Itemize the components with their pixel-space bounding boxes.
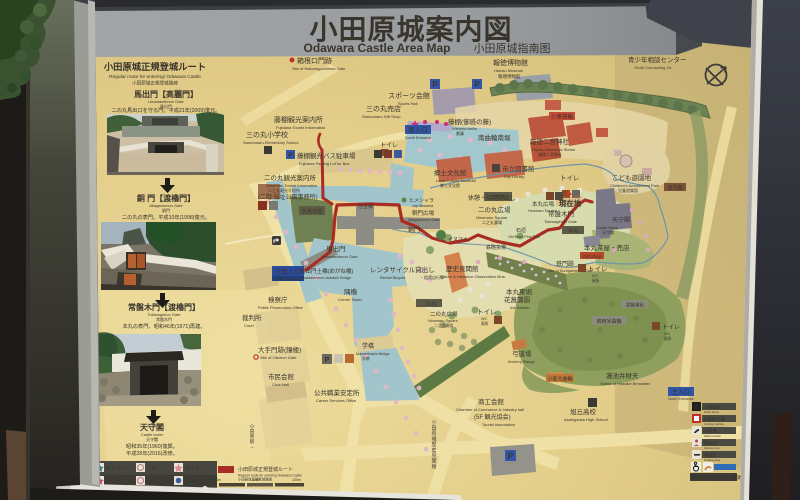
svg-text:P: P [325, 357, 330, 364]
svg-text:文: 文 [589, 399, 595, 407]
svg-text:車椅子・ベビーカー通路: 車椅子・ベビーカー通路 [691, 474, 742, 481]
svg-text:小田原城正規登城ルート: 小田原城正規登城ルート [103, 61, 206, 72]
svg-text:Archery Range: Archery Range [508, 359, 535, 364]
svg-text:トイレ: トイレ [662, 325, 680, 331]
svg-text:三の丸売店: 三の丸売店 [366, 104, 401, 113]
svg-text:0m: 0m [216, 478, 221, 482]
svg-text:平成28年(2016)改修。: 平成28年(2016)改修。 [126, 449, 178, 457]
svg-text:WC: WC [592, 274, 599, 278]
svg-text:Akaganemon Gate: Akaganemon Gate [408, 218, 440, 222]
svg-text:紫藤: 紫藤 [456, 130, 464, 136]
svg-text:郷土文化館: 郷土文化館 [434, 168, 467, 177]
svg-text:小峯曲輪: 小峯曲輪 [551, 113, 574, 121]
svg-text:North Entrance: North Entrance [668, 397, 694, 401]
svg-text:市民会館: 市民会館 [268, 372, 295, 381]
svg-text:三の丸小学校: 三の丸小学校 [246, 130, 288, 139]
svg-text:自動販売機: 自動販売機 [704, 416, 726, 423]
svg-text:正面入口: 正面入口 [275, 268, 301, 276]
svg-text:P: P [507, 451, 513, 461]
svg-text:Nature & Historical Observatio: Nature & Historical Observation Mus. [440, 274, 506, 279]
svg-text:二の丸広場: 二の丸広場 [478, 205, 511, 214]
svg-text:報德博物館: 報德博物館 [498, 73, 521, 80]
svg-text:常盤木門【渡櫓門】: 常盤木門【渡櫓門】 [128, 302, 200, 312]
svg-text:トイレ: トイレ [380, 143, 398, 149]
svg-text:City Library: City Library [504, 174, 524, 179]
svg-text:Public phone: Public phone [704, 410, 720, 414]
svg-text:Hotoku Museum: Hotoku Museum [494, 68, 524, 73]
svg-text:授乳室: 授乳室 [704, 440, 717, 447]
svg-text:South Entrance: South Entrance [405, 136, 431, 140]
svg-text:馬出門【高麗門】: 馬出門【高麗門】 [134, 89, 198, 99]
svg-text:Regular route for entering/ Od: Regular route for entering/ Odawara Cast… [109, 74, 201, 80]
svg-text:休憩・荷物貸出し: 休憩・荷物貸出し [468, 194, 516, 202]
svg-text:イヌマキ: イヌマキ [448, 237, 468, 243]
svg-text:裁判所: 裁判所 [242, 313, 262, 322]
svg-text:青少年相談センター: 青少年相談センター [628, 55, 687, 64]
svg-text:報徳博物館: 報徳博物館 [493, 58, 528, 67]
svg-text:Cherry: Cherry [185, 472, 194, 476]
svg-text:Main Entrance: Main Entrance [276, 277, 299, 281]
svg-text:報德二宮神社: 報德二宮神社 [538, 151, 562, 157]
svg-text:本丸茶屋・売店: 本丸茶屋・売店 [584, 243, 630, 252]
svg-text:Career Services Office: Career Services Office [316, 398, 357, 403]
svg-text:小田原城正規登城路線: 小田原城正規登城路線 [132, 80, 178, 87]
svg-text:はなしょうぶ: はなしょうぶ [185, 478, 215, 485]
svg-text:Ume Blossom: Ume Blossom [147, 472, 165, 476]
svg-text:Court: Court [244, 323, 255, 328]
svg-text:トイレ: トイレ [588, 266, 608, 273]
svg-text:Rental Bicycle: Rental Bicycle [380, 275, 406, 280]
svg-text:廁所: 廁所 [481, 321, 489, 326]
svg-text:Manabibashi Bridge: Manabibashi Bridge [356, 352, 390, 356]
svg-text:天守閣: 天守閣 [140, 422, 164, 432]
svg-text:Chamber of Commerce & Industry: Chamber of Commerce & Industry hall [456, 407, 524, 412]
svg-text:喫煙所: 喫煙所 [704, 452, 717, 459]
svg-text:Odawara Castle Area Map: Odawara Castle Area Map [304, 41, 451, 55]
svg-text:50m: 50m [252, 478, 259, 482]
svg-text:銅門広場: 銅門広場 [412, 209, 435, 217]
svg-text:旭丘高校: 旭丘高校 [570, 407, 597, 416]
svg-text:検察庁: 検察庁 [268, 295, 288, 304]
svg-text:隅櫓: 隅櫓 [344, 287, 358, 296]
svg-text:Vending machine: Vending machine [704, 422, 724, 426]
svg-text:鄉土文化館: 鄉土文化館 [440, 182, 460, 188]
svg-text:住吉橋: 住吉橋 [358, 203, 373, 210]
svg-text:報徳二宮神社: 報徳二宮神社 [530, 137, 570, 146]
svg-text:Tokiwagimon Gate: Tokiwagimon Gate [544, 219, 578, 224]
svg-text:廁所: 廁所 [592, 278, 600, 283]
svg-text:銅門: 銅門 [408, 226, 420, 234]
svg-text:Public Prosecutors Office: Public Prosecutors Office [258, 305, 304, 310]
svg-text:銅 門【渡櫓門】: 銅 門【渡櫓門】 [137, 193, 195, 203]
svg-text:廁所: 廁所 [664, 336, 672, 341]
svg-text:小田原城正規登城ルート: 小田原城正規登城ルート [238, 466, 293, 473]
svg-text:馬出門: 馬出門 [326, 244, 346, 253]
svg-text:箱根口門跡: 箱根口門跡 [297, 56, 332, 65]
svg-text:文: 文 [265, 147, 271, 155]
svg-text:学橋: 学橋 [362, 342, 374, 350]
svg-text:Fujidana Parking Lot for Bus: Fujidana Parking Lot for Bus [299, 161, 349, 166]
svg-text:二之丸廣場: 二之丸廣場 [434, 323, 453, 328]
svg-text:鉄砲矢場: 鉄砲矢場 [486, 244, 506, 251]
svg-text:✆: ✆ [694, 404, 700, 412]
svg-text:二の丸の表門。平成10年(1998)復元。: 二の丸の表門。平成10年(1998)復元。 [122, 213, 210, 221]
svg-text:(5F 観光協会): (5F 観光協会) [474, 413, 511, 421]
svg-text:兒童遊樂園: 兒童遊樂園 [618, 187, 638, 193]
svg-text:(二階:城址公園事務所): (二階:城址公園事務所) [258, 193, 318, 201]
svg-text:Smoking area: Smoking area [704, 458, 721, 462]
svg-text:レンタサイクル貸出し: レンタサイクル貸出し [370, 265, 435, 274]
svg-text:スポーツ会館: スポーツ会館 [388, 91, 430, 100]
svg-text:Youth Counseling Ctr.: Youth Counseling Ctr. [634, 65, 673, 70]
svg-text:Umadashimon Gate: Umadashimon Gate [322, 254, 358, 259]
svg-text:Statue of Hasuike Benzaiten: Statue of Hasuike Benzaiten [600, 381, 650, 386]
svg-text:Corner Tower: Corner Tower [338, 297, 363, 302]
svg-text:Site of Otemon Gate: Site of Otemon Gate [260, 355, 297, 360]
svg-text:小峯大曲輪: 小峯大曲輪 [547, 376, 572, 383]
svg-text:P: P [474, 80, 480, 89]
svg-text:主入口: 主入口 [672, 388, 690, 396]
svg-text:南入口: 南入口 [408, 125, 428, 134]
svg-text:Nursing room: Nursing room [704, 446, 720, 450]
svg-text:100m: 100m [292, 478, 301, 482]
svg-text:Tourist Association: Tourist Association [482, 422, 515, 427]
svg-text:水飲場: 水飲場 [704, 428, 717, 435]
svg-text:豆汽車: 豆汽車 [667, 185, 682, 192]
svg-text:小田原城歴史見聞館: 小田原城歴史見聞館 [431, 419, 436, 470]
svg-text:二の丸広場: 二の丸広場 [430, 310, 458, 318]
svg-text:天守閣: 天守閣 [612, 216, 630, 224]
svg-text:Site of Kuroganemon Gate: Site of Kuroganemon Gate [548, 269, 593, 273]
svg-text:Honmaru Square: Honmaru Square [528, 209, 557, 213]
svg-text:P: P [288, 153, 293, 160]
svg-text:二之丸觀光介紹所: 二之丸觀光介紹所 [268, 187, 300, 193]
svg-text:市立図書館: 市立図書館 [502, 164, 535, 173]
svg-text:石垣: 石垣 [516, 227, 526, 234]
svg-text:本丸東堀: 本丸東堀 [506, 287, 533, 296]
svg-text:二の丸: 二の丸 [421, 301, 436, 308]
svg-text:蓮池弁財天: 蓮池弁財天 [606, 371, 639, 380]
svg-text:丸馬出堀: 丸馬出堀 [302, 208, 322, 215]
svg-text:南曲輪南堀: 南曲輪南堀 [478, 133, 511, 142]
svg-text:大手門跡(鐘楼): 大手門跡(鐘楼) [258, 345, 301, 354]
svg-text:Umadashimon-dobashi Bridge: Umadashimon-dobashi Bridge [300, 276, 351, 280]
svg-text:Jap.Stewartia: Jap.Stewartia [412, 204, 433, 208]
svg-text:昭和35年(1960)復興。: 昭和35年(1960)復興。 [126, 442, 178, 450]
svg-text:Old Black Pine Tree: Old Black Pine Tree [508, 235, 540, 239]
svg-text:Gift Shop: Gift Shop [583, 254, 602, 259]
svg-text:天守閣: 天守閣 [146, 436, 158, 442]
svg-text:Sannomaru Elementary School: Sannomaru Elementary School [243, 140, 298, 145]
svg-text:WC: WC [664, 332, 671, 336]
svg-text:Asahigaoka High School: Asahigaoka High School [564, 417, 608, 422]
svg-text:P: P [432, 80, 438, 89]
svg-text:弓道場: 弓道場 [512, 349, 532, 358]
svg-text:小田原城指南图: 小田原城指南图 [474, 41, 551, 55]
svg-text:Hydrangea: Hydrangea [106, 472, 120, 476]
svg-text:藤棚観光バス駐車場: 藤棚観光バス駐車場 [297, 151, 356, 160]
svg-text:学橋: 学橋 [362, 356, 370, 361]
svg-text:二之丸廣場: 二之丸廣場 [482, 219, 502, 225]
svg-text:小田原駅→: 小田原駅→ [250, 423, 255, 449]
svg-text:歴史見聞館: 歴史見聞館 [446, 264, 479, 273]
svg-text:トイレ: トイレ [560, 175, 580, 182]
svg-text:Site of Hakoneguchimon Gate: Site of Hakoneguchimon Gate [292, 66, 346, 71]
svg-text:こども遊園地: こども遊園地 [612, 173, 652, 182]
svg-text:本丸の表門、昭和46年(1971)再建。: 本丸の表門、昭和46年(1971)再建。 [122, 322, 205, 330]
svg-text:商工会館: 商工会館 [478, 397, 505, 406]
svg-text:藤棚(御感の藤): 藤棚(御感の藤) [448, 117, 491, 126]
svg-text:公共職業安定所: 公共職業安定所 [314, 388, 360, 397]
svg-text:公衆電話: 公衆電話 [704, 404, 721, 411]
svg-text:Ninomaru Square: Ninomaru Square [428, 319, 458, 323]
svg-text:藤棚観光案内所: 藤棚観光案内所 [274, 115, 323, 124]
svg-text:競輪場前: 競輪場前 [626, 302, 644, 309]
svg-text:Iris Garden: Iris Garden [510, 305, 530, 310]
svg-text:本丸: 本丸 [568, 228, 578, 235]
svg-text:WC: WC [481, 317, 488, 321]
svg-text:Fujidana Tourist Information: Fujidana Tourist Information [276, 125, 325, 130]
svg-text:Civic Hall: Civic Hall [272, 382, 289, 387]
svg-text:馬出門土橋(めがね橋): 馬出門土橋(めがね橋) [300, 267, 353, 275]
svg-text:トイレ: トイレ [477, 309, 497, 316]
svg-text:常盤木門: 常盤木門 [156, 316, 172, 322]
svg-text:御用米曲輪: 御用米曲輪 [596, 318, 621, 325]
svg-text:花菖蒲園: 花菖蒲園 [504, 295, 530, 304]
svg-text:銅門: 銅門 [162, 207, 170, 213]
svg-text:本丸広場: 本丸広場 [532, 200, 555, 208]
svg-text:Sannomaru Gift Shop: Sannomaru Gift Shop [362, 114, 401, 119]
svg-text:二の丸観光案内所: 二の丸観光案内所 [264, 173, 317, 182]
svg-text:Water fountain: Water fountain [704, 434, 721, 438]
svg-text:鉄門跡: 鉄門跡 [556, 260, 574, 268]
svg-text:天守閣: 天守閣 [602, 229, 614, 235]
